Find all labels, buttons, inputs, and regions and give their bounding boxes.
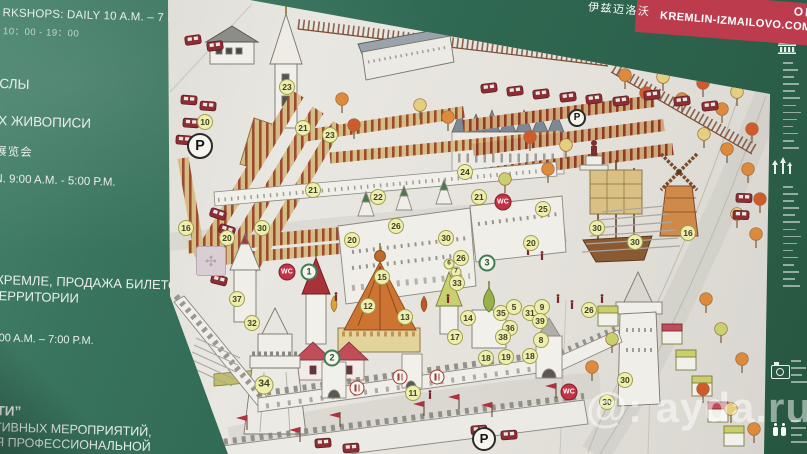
map-marker-3: 3 xyxy=(479,255,496,272)
map-marker-26: 26 xyxy=(388,218,404,234)
map-marker-18: 18 xyxy=(478,350,494,366)
map-marker-15: 15 xyxy=(374,269,390,285)
map-marker-26: 26 xyxy=(581,302,597,318)
photo-of-kremlin-izmailovo-map-board: RKSHOPS: DAILY 10 A.M. – 7 P.M. 10：00 - … xyxy=(0,0,807,454)
map-marker-WC: WC xyxy=(561,384,578,401)
map-marker-39: 39 xyxy=(532,313,548,329)
map-marker-21: 21 xyxy=(471,189,487,205)
map-marker-1: 1 xyxy=(301,264,318,281)
map-marker-30: 30 xyxy=(438,230,454,246)
map-marker-food xyxy=(350,381,365,396)
map-marker-30: 30 xyxy=(254,220,270,236)
banner-cjk-label: 伊兹迈洛沃 xyxy=(587,0,651,19)
map-marker-20: 20 xyxy=(219,230,235,246)
painting-line: Х ЖИВОПИСИ xyxy=(0,113,91,131)
map-marker-2: 2 xyxy=(324,350,341,367)
map-marker-WC: WC xyxy=(279,264,296,281)
map-marker-18: 18 xyxy=(522,348,538,364)
quoted-name-line: СТИ” xyxy=(0,403,21,419)
map-marker-32: 32 xyxy=(244,315,260,331)
workshops-hours-cjk: 10：00 - 19：00 xyxy=(3,23,80,39)
map-marker-food xyxy=(393,370,408,385)
map-marker-20: 20 xyxy=(344,232,360,248)
map-marker-34: 34 xyxy=(255,376,274,395)
map-marker-10: 10 xyxy=(197,114,213,130)
map-marker-17: 17 xyxy=(447,329,463,345)
map-marker-26: 26 xyxy=(453,250,469,266)
map-marker-21: 21 xyxy=(305,182,321,198)
map-marker-23: 23 xyxy=(279,79,295,95)
map-marker-19: 19 xyxy=(498,349,514,365)
star-tile: ✣ xyxy=(196,246,226,276)
map-marker-12: 12 xyxy=(360,298,376,314)
workshops-hours-line: RKSHOPS: DAILY 10 A.M. – 7 P.M. xyxy=(2,7,190,25)
website-banner: ОВО KREMLIN-IZMAILOVO.COM xyxy=(635,0,807,48)
map-marker-30: 30 xyxy=(627,234,643,250)
map-marker-P: P xyxy=(568,109,586,127)
map-marker-30: 30 xyxy=(589,220,605,236)
crafts-line: СЛЫ xyxy=(0,76,30,92)
museum-hours-line: N. 9:00 A.M. - 5:00 P.M. xyxy=(0,173,116,189)
map-marker-8: 8 xyxy=(533,332,549,348)
watermark: @: ayda.ru xyxy=(586,384,807,432)
open-hours-line: 0:00 A.M. – 7:00 P.M. xyxy=(0,332,94,347)
map-marker-21: 21 xyxy=(295,120,311,136)
map-marker-11: 11 xyxy=(405,385,421,401)
map-marker-P: P xyxy=(472,427,496,451)
fine-print-lines xyxy=(783,186,801,292)
exhibition-cjk: 展览会 xyxy=(0,143,33,160)
map-marker-14: 14 xyxy=(460,310,476,326)
map-marker-16: 16 xyxy=(680,225,696,241)
map-marker-22: 22 xyxy=(370,189,386,205)
map-marker-20: 20 xyxy=(523,235,539,251)
map-marker-P: P xyxy=(187,133,213,159)
map-marker-38: 38 xyxy=(495,329,511,345)
map-marker-13: 13 xyxy=(397,309,413,325)
map-marker-25: 25 xyxy=(535,201,551,217)
territory-line: ТЕРРИТОРИИ xyxy=(0,288,79,306)
map-marker-24: 24 xyxy=(457,164,473,180)
kremlin-towers-icon xyxy=(770,157,792,174)
map-marker-WC: WC xyxy=(495,194,512,211)
watermark-at-icon: @: xyxy=(586,384,643,431)
watermark-text: ayda.ru xyxy=(656,384,807,431)
map-marker-food xyxy=(430,370,445,385)
map-marker-37: 37 xyxy=(229,291,245,307)
camera-icon xyxy=(771,365,790,379)
fine-print-lines xyxy=(783,62,801,154)
map-marker-23: 23 xyxy=(322,127,338,143)
map-marker-33: 33 xyxy=(449,275,465,291)
windmill-icon xyxy=(660,154,698,236)
map-marker-16: 16 xyxy=(178,220,194,236)
map-marker-5: 5 xyxy=(506,299,522,315)
